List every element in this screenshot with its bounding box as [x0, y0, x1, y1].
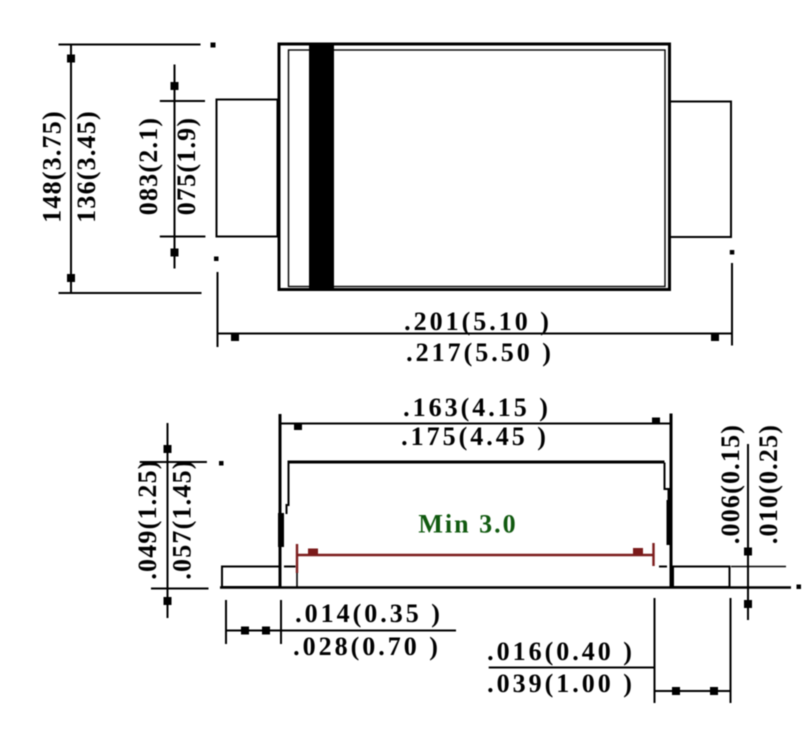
svg-text:148(3.75): 148(3.75) — [38, 110, 67, 223]
svg-text:083(2.1): 083(2.1) — [134, 117, 163, 215]
svg-text:.006(0.15): .006(0.15) — [716, 424, 745, 544]
svg-text:136(3.45): 136(3.45) — [72, 110, 101, 223]
svg-text:.049(1.25): .049(1.25) — [133, 459, 162, 579]
svg-text:.028(0.70 ): .028(0.70 ) — [293, 632, 441, 661]
svg-text:.217(5.50 ): .217(5.50 ) — [406, 338, 554, 367]
svg-text:.014(0.35 ): .014(0.35 ) — [295, 599, 443, 628]
svg-text:.016(0.40 ): .016(0.40 ) — [487, 637, 635, 666]
svg-text:.057(1.45): .057(1.45) — [168, 459, 197, 579]
svg-text:.010(0.25): .010(0.25) — [754, 424, 783, 544]
svg-text:.163(4.15 ): .163(4.15 ) — [403, 393, 551, 422]
svg-text:075(1.9): 075(1.9) — [172, 117, 201, 215]
svg-text:.175(4.45 ): .175(4.45 ) — [401, 422, 549, 451]
svg-text:.039(1.00 ): .039(1.00 ) — [487, 669, 635, 698]
svg-text:Min 3.0: Min 3.0 — [418, 510, 517, 539]
svg-text:.201(5.10 ): .201(5.10 ) — [404, 307, 552, 336]
